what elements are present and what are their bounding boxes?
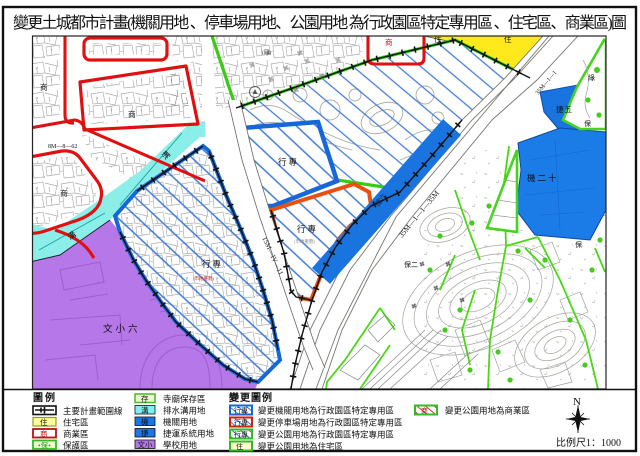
svg-text:圖例: 圖例 bbox=[33, 391, 57, 404]
svg-text:學校用地: 學校用地 bbox=[163, 440, 198, 450]
svg-text:捷運系統用地: 捷運系統用地 bbox=[163, 429, 215, 439]
svg-text:溝: 溝 bbox=[141, 405, 149, 415]
svg-text:商: 商 bbox=[421, 406, 428, 415]
svg-text:文小六: 文小六 bbox=[103, 323, 141, 335]
svg-text:保護區: 保護區 bbox=[63, 441, 89, 451]
svg-text:寺廟保存區: 寺廟保存區 bbox=[163, 394, 206, 404]
svg-text:機: 機 bbox=[141, 417, 149, 427]
svg-text:變更公園用地為商業區: 變更公園用地為商業區 bbox=[445, 406, 530, 416]
svg-text:變更公園用地為行政園區特定專用區: 變更公園用地為行政園區特定專用區 bbox=[258, 430, 394, 440]
svg-text:機二十: 機二十 bbox=[527, 173, 559, 183]
svg-text:(市地重劃): (市地重劃) bbox=[193, 275, 214, 282]
svg-text:行專: 行專 bbox=[202, 259, 223, 269]
svg-text:商: 商 bbox=[385, 37, 393, 47]
svg-text:變更公園用地為住宅區: 變更公園用地為住宅區 bbox=[258, 442, 343, 452]
svg-text:捷五: 捷五 bbox=[556, 104, 573, 114]
svg-text:機關用地: 機關用地 bbox=[163, 417, 198, 427]
svg-text:綠: 綠 bbox=[588, 73, 595, 82]
svg-text:商: 商 bbox=[40, 82, 48, 92]
svg-text:8M—8—62: 8M—8—62 bbox=[48, 144, 77, 150]
svg-text:行專: 行專 bbox=[278, 157, 299, 167]
svg-text:比例尺1：1000: 比例尺1：1000 bbox=[556, 436, 621, 449]
svg-text:(市地重劃): (市地重劃) bbox=[294, 238, 315, 245]
svg-text:變更土城都市計畫(機關用地 、停車場用地、公園用地 為行政園: 變更土城都市計畫(機關用地 、停車場用地、公園用地 為行政園區特定專用區 、住宅… bbox=[13, 14, 627, 32]
svg-text:商: 商 bbox=[128, 109, 136, 119]
svg-text:住: 住 bbox=[236, 442, 243, 451]
svg-text:商: 商 bbox=[40, 429, 48, 439]
svg-text:保: 保 bbox=[575, 240, 582, 249]
svg-text:變更停車場用地為行政園區特定專用區: 變更停車場用地為行政園區特定專用區 bbox=[258, 418, 403, 428]
svg-text:存: 存 bbox=[141, 394, 149, 404]
svg-text:•保•: •保• bbox=[38, 441, 51, 450]
svg-text:捷: 捷 bbox=[141, 428, 149, 438]
svg-text:住: 住 bbox=[40, 417, 48, 427]
svg-text:行專: 行專 bbox=[234, 430, 248, 439]
svg-text:商業區: 商業區 bbox=[63, 429, 89, 439]
svg-text:行專: 行專 bbox=[297, 224, 318, 234]
svg-text:N: N bbox=[573, 396, 581, 408]
svg-text:行專: 行專 bbox=[234, 418, 248, 427]
svg-text:變更圖例: 變更圖例 bbox=[228, 391, 273, 404]
svg-text:(四): (四) bbox=[262, 49, 271, 56]
svg-text:住宅區: 住宅區 bbox=[63, 418, 89, 428]
svg-text:商: 商 bbox=[60, 188, 68, 198]
svg-text:排水溝用地: 排水溝用地 bbox=[163, 406, 206, 416]
svg-text:主要計畫範圍線: 主要計畫範圍線 bbox=[63, 406, 123, 416]
svg-text:行專: 行專 bbox=[234, 406, 248, 415]
svg-text:文小: 文小 bbox=[138, 440, 153, 450]
svg-text:保: 保 bbox=[584, 119, 591, 128]
svg-text:變更機關用地為行政園區特定專用區: 變更機關用地為行政園區特定專用區 bbox=[258, 406, 394, 416]
svg-text:保二: 保二 bbox=[404, 260, 418, 269]
